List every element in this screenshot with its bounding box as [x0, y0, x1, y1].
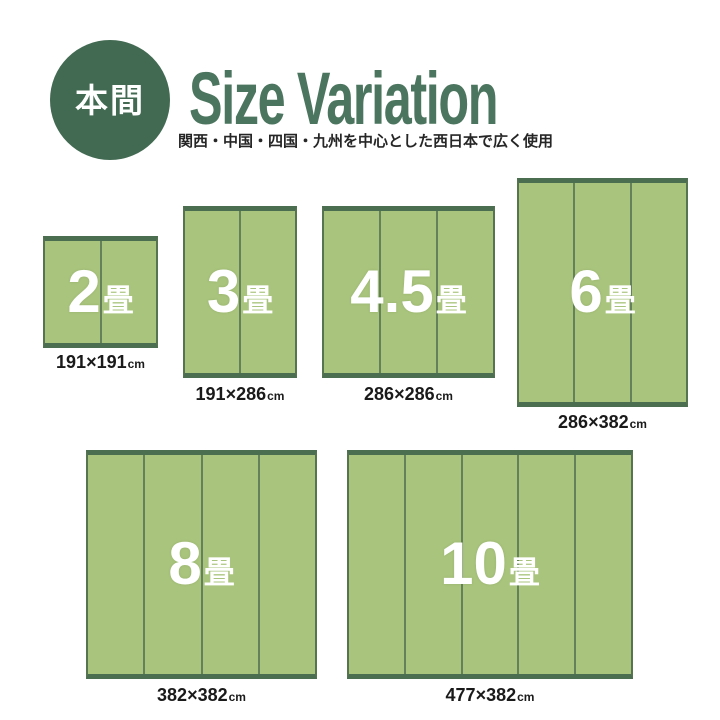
dimension-unit: cm [436, 389, 453, 403]
mat-6jo-label: 6畳 [519, 183, 686, 402]
mat-8jo: 8畳 [86, 450, 317, 679]
mat-8jo-size-number: 8 [168, 541, 201, 588]
mat-8jo-label-inner: 8畳 [168, 541, 234, 588]
dimension-unit: cm [630, 417, 647, 431]
mat-3jo-label-inner: 3畳 [207, 269, 273, 316]
mat-4-5jo-label-inner: 4.5畳 [350, 269, 466, 316]
mat-10jo-size-number: 10 [440, 541, 507, 588]
mat-3jo-dimensions: 191×286cm [163, 385, 317, 403]
mat-6jo-dimensions: 286×382cm [497, 413, 708, 431]
mat-10jo: 10畳 [347, 450, 633, 679]
mat-3jo: 3畳 [183, 206, 297, 378]
mat-8jo-dimensions: 382×382cm [66, 686, 337, 704]
mat-2jo: 2畳 [43, 236, 158, 348]
mat-6jo: 6畳 [517, 178, 688, 407]
page-title: Size Variation [189, 62, 497, 136]
dimension-value: 286×286 [364, 384, 435, 404]
mat-2jo-size-number: 2 [67, 269, 100, 316]
honma-badge-label: 本間 [75, 84, 145, 117]
mat-4-5jo-label: 4.5畳 [324, 211, 493, 373]
mat-10jo-size-unit: 畳 [509, 558, 540, 587]
dimension-value: 382×382 [157, 685, 228, 705]
mat-6jo-size-unit: 畳 [605, 286, 636, 315]
mat-10jo-label-inner: 10畳 [440, 541, 540, 588]
page-subtitle: 関西・中国・四国・九州を中心とした西日本で広く使用 [178, 133, 553, 151]
mat-10jo-dimensions: 477×382cm [327, 686, 653, 704]
dimension-unit: cm [229, 690, 246, 704]
mat-3jo-label: 3畳 [185, 211, 295, 373]
mat-6jo-label-inner: 6畳 [569, 269, 635, 316]
mat-2jo-size-unit: 畳 [103, 286, 134, 315]
mat-4-5jo-dimensions: 286×286cm [302, 385, 515, 403]
size-variation-infographic: 本間 Size Variation 関西・中国・四国・九州を中心とした西日本で広… [0, 0, 720, 720]
mat-4-5jo-size-unit: 畳 [436, 286, 467, 315]
mat-4-5jo: 4.5畳 [322, 206, 495, 378]
mat-8jo-label: 8畳 [88, 455, 315, 674]
honma-badge: 本間 [50, 40, 170, 160]
dimension-value: 191×191 [56, 352, 127, 372]
mat-2jo-label-inner: 2畳 [67, 269, 133, 316]
mat-6jo-size-number: 6 [569, 269, 602, 316]
mat-8jo-size-unit: 畳 [204, 558, 235, 587]
dimension-value: 286×382 [558, 412, 629, 432]
dimension-value: 477×382 [446, 685, 517, 705]
mat-4-5jo-size-number: 4.5 [350, 269, 433, 316]
dimension-value: 191×286 [196, 384, 267, 404]
dimension-unit: cm [267, 389, 284, 403]
mat-10jo-label: 10畳 [349, 455, 631, 674]
mat-3jo-size-number: 3 [207, 269, 240, 316]
mat-2jo-dimensions: 191×191cm [23, 353, 178, 371]
mat-2jo-label: 2畳 [45, 241, 156, 343]
dimension-unit: cm [517, 690, 534, 704]
dimension-unit: cm [128, 357, 145, 371]
mat-3jo-size-unit: 畳 [242, 286, 273, 315]
